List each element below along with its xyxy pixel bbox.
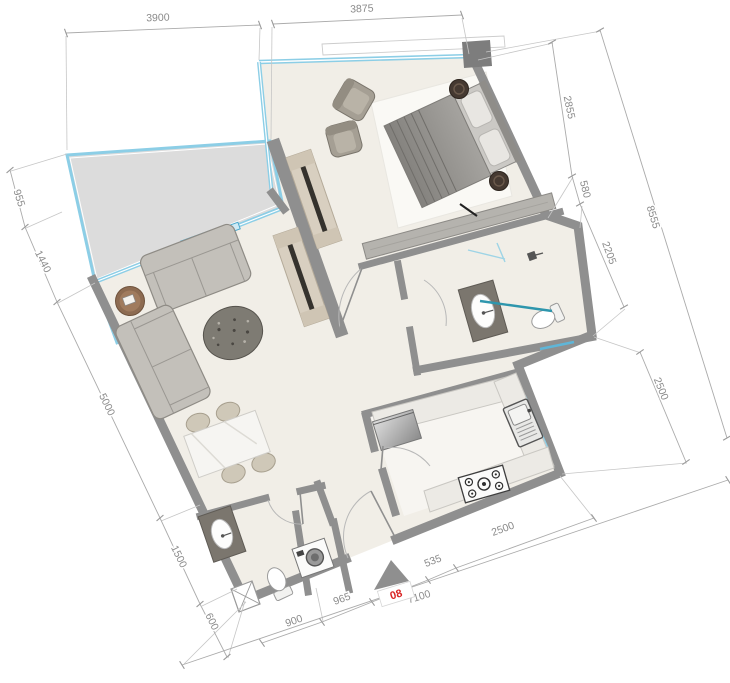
dim-bottom-3: 535 [423, 552, 444, 570]
nightstand-top [450, 80, 469, 99]
dim-right-outer: 8555 [644, 204, 662, 230]
corner-column [462, 40, 492, 68]
dim-left-2: 1440 [32, 249, 53, 275]
nightstand-bottom [490, 172, 509, 191]
dim-line-top-2 [273, 15, 462, 24]
floor-plan-screenshot: 3900 3875 955 1440 5000 1500 600 2855 58… [0, 0, 730, 683]
dim-left-4: 1500 [168, 544, 189, 570]
dim-bottom-1: 900 [284, 613, 305, 630]
dim-top-2: 3875 [350, 2, 374, 15]
dim-left-3: 5000 [96, 392, 117, 418]
dim-right-3: 2205 [599, 240, 618, 266]
dim-line-right-lower [640, 352, 686, 462]
dim-line-right-outer [600, 30, 727, 438]
dim-left-1: 955 [11, 188, 28, 208]
dim-line-top-1 [66, 25, 260, 33]
floor-plan-svg: 3900 3875 955 1440 5000 1500 600 2855 58… [0, 0, 730, 683]
dim-left-5: 600 [202, 611, 221, 632]
dim-bottom-4: 2500 [490, 519, 516, 538]
dim-top-1: 3900 [146, 12, 170, 25]
dim-right-2: 580 [577, 179, 593, 199]
dim-right-lower: 2500 [651, 376, 671, 402]
